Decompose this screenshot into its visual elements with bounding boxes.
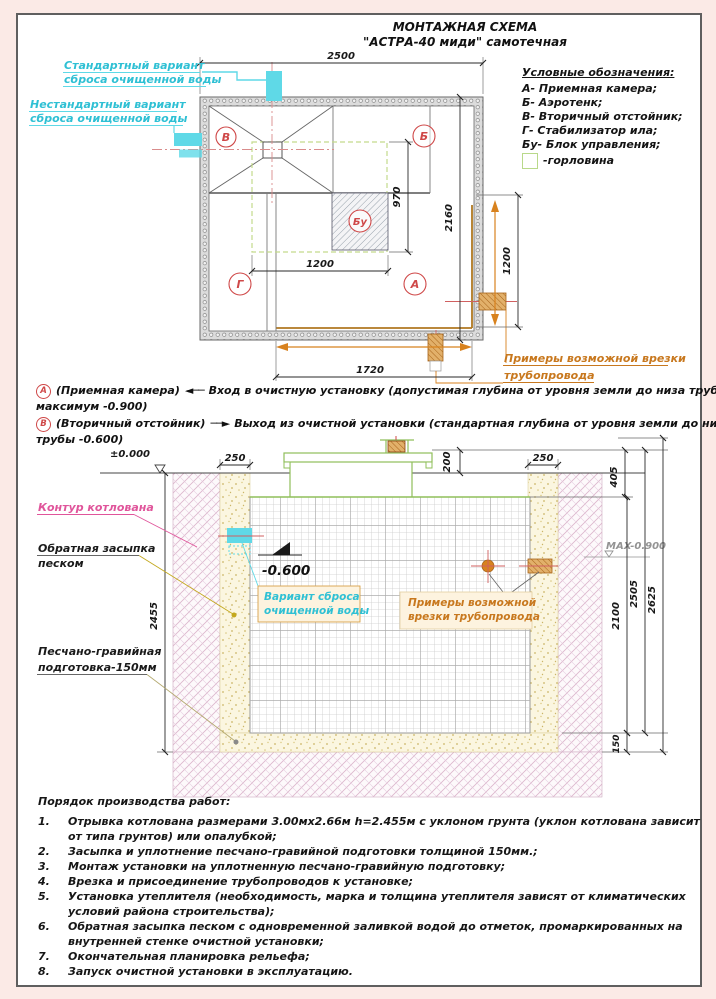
note-b-text-2: трубы -0.600) <box>36 432 704 448</box>
bottom-pipe-sleeve <box>430 361 441 371</box>
dim-250-right: 250 <box>533 453 554 464</box>
badge-b: В <box>36 417 51 432</box>
leader-dot <box>232 613 237 618</box>
plan-vrezka-label: Примеры возможной врезки трубопровода <box>503 352 686 383</box>
worklist-item: 8. Запуск очистной установки в эксплуата… <box>38 964 700 979</box>
plan-vrezka-label-1: Примеры возможной врезки <box>504 352 686 365</box>
badge-a: А <box>36 384 51 399</box>
note-a-text-2: максимум -0.900) <box>36 399 704 415</box>
top-outlet-pipe <box>266 71 282 101</box>
dim-2160: 2160 <box>444 204 455 232</box>
chamber-v-label: В <box>222 131 230 144</box>
legend-gorlovina-row: -горловина <box>522 153 683 169</box>
dim-200: 200 <box>442 452 453 473</box>
gorlovina-square-icon <box>522 153 538 169</box>
chamber-a-label: А <box>410 278 420 291</box>
note-b-text: Выход из очистной установки (стандартная… <box>234 416 716 432</box>
variant-label-2: очищенной воды <box>264 605 370 617</box>
podgotovka-label-2: подготовка-150мм <box>38 661 157 674</box>
legend-item: В- Вторичный отстойник; <box>522 110 683 124</box>
chamber-g-label: Г <box>236 278 244 291</box>
standard-outlet-label-1: Стандартный вариант <box>64 59 205 72</box>
dim-2455: 2455 <box>149 602 160 630</box>
dim-405: 405 <box>609 467 620 489</box>
legend: Условные обозначения: А- Приемная камера… <box>522 66 683 169</box>
dim-250-left: 250 <box>225 453 246 464</box>
plan-center-opening <box>263 142 282 158</box>
left-outlet-pipe-2 <box>179 150 202 158</box>
arrow-left-icon: ◄── <box>185 383 204 399</box>
legend-item: Б- Аэротенк; <box>522 96 683 110</box>
note-b: В (Вторичный отстойник) ──► Выход из очи… <box>36 416 704 432</box>
chamber-bu-label: Бу <box>353 217 368 228</box>
worklist-item: 6. Обратная засыпка песком с одновременн… <box>38 919 700 949</box>
dim-1200-right: 1200 <box>502 247 513 275</box>
worklist-item: 3. Монтаж установки на уплотненную песча… <box>38 859 700 874</box>
zasypka-label-1: Обратная засыпка <box>38 542 155 555</box>
section-vrezka-label-2: врезки трубопровода <box>408 611 540 623</box>
dim-150: 150 <box>612 735 622 754</box>
legend-item: Бу- Блок управления; <box>522 138 683 152</box>
worklist-item: 2. Засыпка и уплотнение песчано-гравийно… <box>38 844 700 859</box>
notes: А (Приемная камера) ◄── Вход в очистную … <box>36 383 704 449</box>
worklist-item: 4. Врезка и присоединение трубопроводов … <box>38 874 700 889</box>
gorlovina-label: -горловина <box>543 154 614 168</box>
arrow-right-icon: ──► <box>210 416 229 432</box>
worklist-item: 1. Отрывка котлована размерами 3.00мх2.6… <box>38 814 700 844</box>
dim-1720: 1720 <box>356 365 384 376</box>
nonstandard-outlet-label-2: сброса очищенной воды <box>30 112 188 125</box>
variant-label-1: Вариант сброса <box>264 591 360 603</box>
note-a-name: (Приемная камера) <box>56 383 180 399</box>
level-out-label: -0.600 <box>262 563 310 579</box>
worklist-item: 7. Окончательная планировка рельефа; <box>38 949 700 964</box>
legend-item: А- Приемная камера; <box>522 82 683 96</box>
kontur-label: Контур котлована <box>38 501 154 514</box>
legend-item: Г- Стабилизатор ила; <box>522 124 683 138</box>
worklist-title: Порядок производства работ: <box>38 794 700 809</box>
standard-outlet-label-2: сброса очищенной воды <box>64 73 222 86</box>
level-max-label: MAX-0.900 <box>606 541 666 552</box>
dim-970: 970 <box>392 187 403 208</box>
arrow-right-icon <box>460 343 472 351</box>
section-vrezka-label-1: Примеры возможной <box>408 597 537 609</box>
note-a-text: Вход в очистную установку (допустимая гл… <box>209 383 716 399</box>
drawing-title: МОНТАЖНАЯ СХЕМА <box>300 20 630 35</box>
dim-2500: 2500 <box>327 51 355 62</box>
dim-1200-bu: 1200 <box>306 259 334 270</box>
worklist: Порядок производства работ: 1. Отрывка к… <box>38 794 700 979</box>
arrow-left-icon <box>276 343 288 351</box>
level-zero-label: ±0.000 <box>110 449 150 460</box>
dim-2505: 2505 <box>629 580 640 608</box>
section-view: ±0.000 -0.600 Вариант сброса очищенной в… <box>37 436 668 797</box>
arrow-down-icon <box>491 314 499 326</box>
outlet-labels: Стандартный вариант сброса очищенной вод… <box>29 59 222 126</box>
podgotovka-label-1: Песчано-гравийная <box>38 645 161 658</box>
dim-2100: 2100 <box>611 602 622 630</box>
note-a: А (Приемная камера) ◄── Вход в очистную … <box>36 383 704 399</box>
zasypka-label-2: песком <box>38 557 84 570</box>
note-b-name: (Вторичный отстойник) <box>56 416 205 432</box>
nonstandard-outlet-label-1: Нестандартный вариант <box>30 98 186 111</box>
drawing-subtitle: "АСТРА-40 миди" самотечная <box>300 35 630 50</box>
drawing-page: 2500 970 2160 1200 1720 1200 В Б Г А Бу <box>0 0 716 999</box>
section-outlet-pipe <box>227 528 252 543</box>
chamber-b-label: Б <box>420 130 428 143</box>
plan-vrezka-label-2: трубопровода <box>504 369 595 382</box>
arrow-up-icon <box>491 200 499 212</box>
zero-level-mark: ±0.000 <box>110 449 165 473</box>
legend-title: Условные обозначения: <box>522 66 683 80</box>
title-block: МОНТАЖНАЯ СХЕМА "АСТРА-40 миди" самотечн… <box>300 20 630 50</box>
right-tie-in-pipe <box>479 293 506 310</box>
worklist-item: 5. Установка утеплителя (необходимость, … <box>38 889 700 919</box>
leader-dot-2 <box>234 740 239 745</box>
dim-2625: 2625 <box>647 586 658 614</box>
left-outlet-pipe <box>174 133 202 146</box>
variant-box: Вариант сброса очищенной воды <box>258 586 370 622</box>
